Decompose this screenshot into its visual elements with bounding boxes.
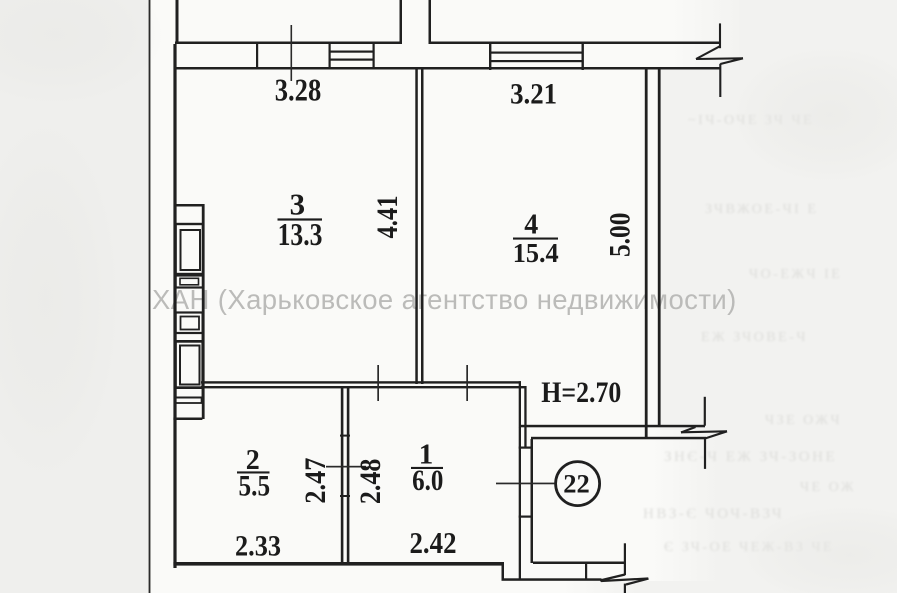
svg-text:ЧО-ЕЖЧ ІЕ: ЧО-ЕЖЧ ІЕ: [749, 267, 842, 282]
svg-text:4: 4: [524, 210, 538, 241]
svg-text:2.47: 2.47: [299, 458, 332, 504]
svg-text:3.28: 3.28: [275, 72, 322, 108]
svg-text:3.21: 3.21: [510, 78, 557, 111]
svg-text:ХАН (Харьковское агентство нед: ХАН (Харьковское агентство недвижимости): [152, 284, 737, 315]
svg-text:2.42: 2.42: [410, 525, 457, 560]
svg-text:2.33: 2.33: [235, 530, 281, 563]
svg-text:ЕЖ ЗЧОВЕ-Ч: ЕЖ ЗЧОВЕ-Ч: [701, 330, 808, 345]
svg-text:4.41: 4.41: [371, 196, 404, 239]
svg-text:ЗЧВЖОЕ-ЧІ Е: ЗЧВЖОЕ-ЧІ Е: [705, 202, 818, 217]
svg-text:22: 22: [563, 468, 590, 498]
svg-text:6.0: 6.0: [412, 464, 443, 497]
svg-text:5.5: 5.5: [239, 470, 271, 503]
svg-text:ЧЗЕ ОЖЧ: ЧЗЕ ОЖЧ: [765, 413, 842, 428]
svg-text:H=2.70: H=2.70: [541, 376, 621, 409]
svg-text:2.48: 2.48: [354, 459, 387, 505]
svg-text:ЧЕ ОЖ: ЧЕ ОЖ: [800, 480, 856, 495]
svg-text:ЗНЄ-Ч ЕЖ ЗЧ-ЗОНЕ: ЗНЄ-Ч ЕЖ ЗЧ-ЗОНЕ: [664, 449, 837, 465]
svg-text:5.00: 5.00: [604, 213, 637, 257]
svg-text:13.3: 13.3: [278, 216, 323, 252]
svg-text:15.4: 15.4: [513, 237, 559, 268]
svg-text:НВЗ-Є ЧОЧ-ВЗЧ: НВЗ-Є ЧОЧ-ВЗЧ: [643, 506, 784, 522]
